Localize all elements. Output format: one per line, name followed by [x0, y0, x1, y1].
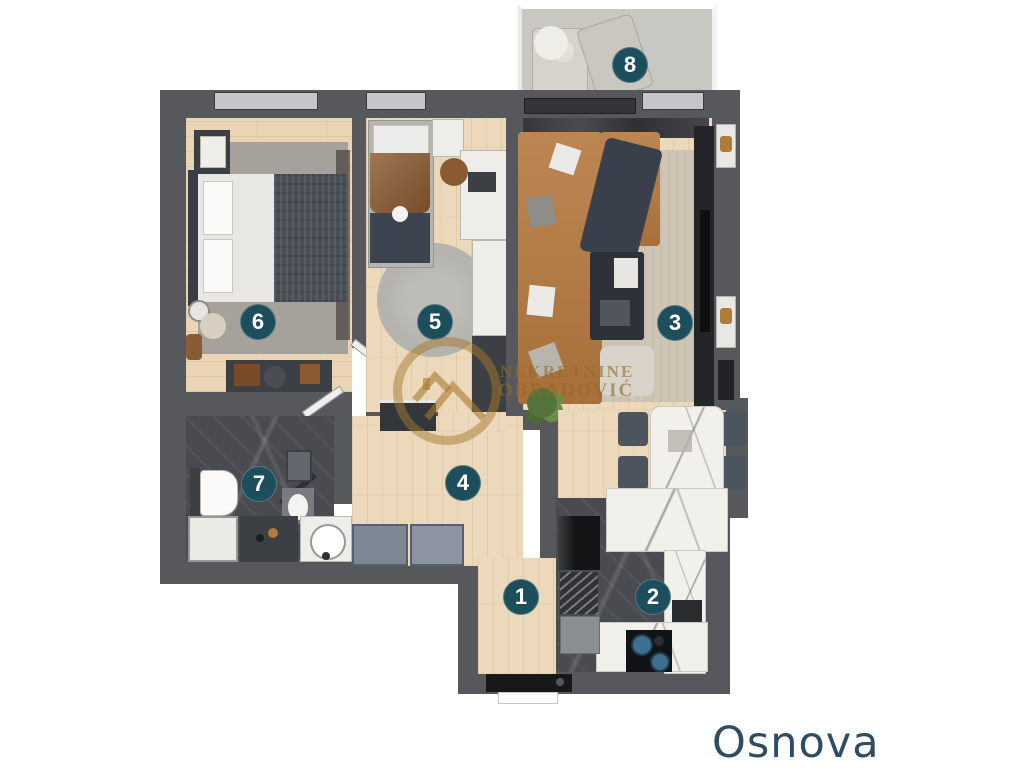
sofa-pillow	[527, 285, 556, 318]
curtain-tie	[720, 308, 732, 324]
bed-ball	[392, 206, 408, 222]
room-2-badge: 2	[635, 579, 671, 615]
nightstand-top	[200, 136, 226, 168]
entry-step	[498, 692, 558, 704]
shower	[188, 516, 238, 562]
single-bed-pillow	[373, 125, 429, 155]
desk	[460, 150, 508, 240]
bed-pillow	[203, 239, 233, 293]
curtain-tie	[720, 136, 732, 152]
floorplan-image: 1 2 3 4 5 6 7 8 NEKRETNINE OBRADOVIĆ Osn…	[0, 0, 1024, 768]
bed-blanket	[274, 174, 348, 302]
kitchen-counter-top	[606, 488, 728, 552]
watermark-roof-icon	[405, 352, 489, 430]
hall-closet	[410, 524, 464, 566]
fridge	[558, 516, 600, 570]
window	[366, 92, 426, 110]
pouf	[200, 313, 226, 339]
dresser-plant	[264, 366, 286, 388]
pot	[631, 634, 653, 656]
wardrobe	[472, 240, 508, 336]
room-5-badge: 5	[417, 304, 453, 340]
lounge-blanket	[534, 26, 568, 60]
cabinet-soap	[268, 528, 278, 538]
kitchen-cabinet	[560, 616, 600, 654]
coffee-table-tray	[614, 258, 638, 288]
dining-chair	[618, 412, 648, 446]
room-1-badge: 1	[503, 579, 539, 615]
hall-closet	[352, 524, 408, 566]
room-6-badge: 6	[240, 304, 276, 340]
mirror-frame	[286, 450, 312, 482]
coffee-table-book	[600, 300, 630, 326]
window	[214, 92, 318, 110]
wall-room6-room5	[352, 118, 366, 348]
room-1-floor	[478, 558, 556, 674]
oven-coils	[560, 572, 598, 614]
dresser-box	[300, 364, 320, 384]
single-bed-throw	[370, 153, 430, 213]
balcony-door	[524, 98, 636, 114]
watermark-line2: OBRADOVIĆ	[498, 381, 634, 401]
room-3-badge: 3	[657, 305, 693, 341]
bed-headboard	[188, 170, 198, 306]
desk-chair	[440, 158, 468, 186]
pot	[650, 652, 670, 672]
sofa-pillow	[526, 194, 556, 227]
faucet	[322, 552, 330, 560]
tall-window	[718, 360, 734, 400]
laptop	[468, 172, 496, 192]
door-handle	[556, 678, 564, 686]
room-7-badge: 7	[241, 466, 277, 502]
wall-bath-right	[334, 416, 352, 504]
window	[642, 92, 704, 110]
toilet-tank	[190, 468, 200, 516]
tv	[700, 210, 710, 332]
toilet	[200, 470, 238, 516]
dining-chair	[618, 456, 648, 490]
wall-left	[160, 90, 186, 584]
bath-cabinet	[240, 516, 298, 562]
table-setting	[668, 430, 692, 452]
watermark-line1: NEKRETNINE	[500, 362, 634, 382]
room-4-badge: 4	[445, 465, 481, 501]
cabinet-knob	[256, 534, 264, 542]
page-title: Osnova	[712, 718, 880, 768]
dresser-box	[234, 364, 260, 386]
bed-pillow	[203, 181, 233, 235]
burner	[654, 636, 664, 646]
room-8-badge: 8	[612, 47, 648, 83]
chair	[186, 334, 202, 360]
